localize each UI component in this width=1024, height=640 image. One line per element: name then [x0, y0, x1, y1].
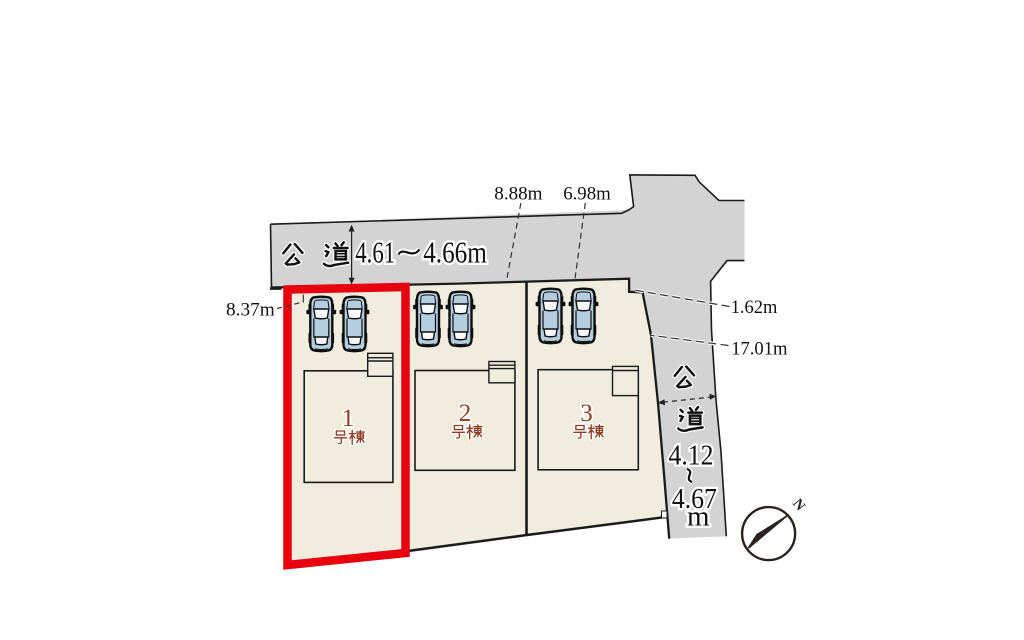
svg-text:4.61: 4.61 [355, 235, 395, 270]
svg-text:4.66m: 4.66m [423, 235, 487, 270]
svg-text:6.98m: 6.98m [563, 184, 611, 205]
svg-text:m: m [687, 500, 710, 532]
svg-text:17.01m: 17.01m [731, 338, 787, 359]
svg-text:1: 1 [342, 405, 355, 432]
svg-text:8.37m: 8.37m [226, 300, 275, 320]
svg-text:1.62m: 1.62m [731, 297, 778, 318]
svg-text:8.88m: 8.88m [494, 184, 542, 205]
svg-text:4.12: 4.12 [669, 439, 714, 471]
